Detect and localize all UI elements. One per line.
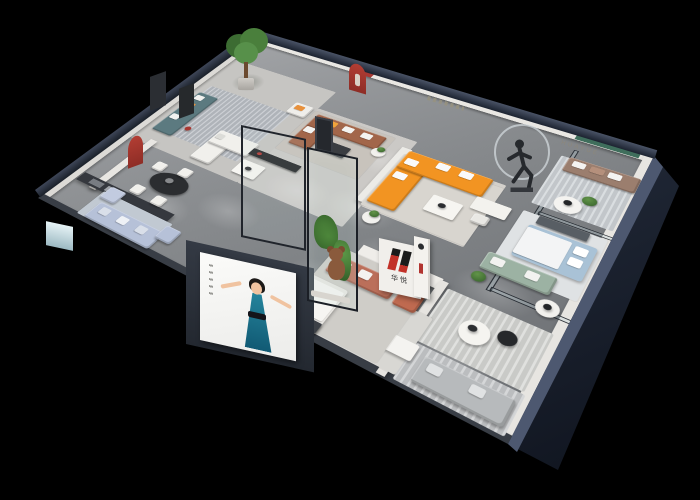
display-pillar (414, 236, 430, 300)
teddy-bear-mascot (325, 246, 347, 282)
dark-doorway (179, 83, 194, 118)
tree-canopy (234, 42, 258, 64)
exterior-bench-box (46, 221, 73, 251)
runner-statue (506, 138, 536, 192)
tree-pot (238, 78, 254, 90)
wall-artwork (315, 116, 333, 154)
poster-vertical-text-marks (209, 264, 213, 299)
niche-figurine (355, 73, 360, 87)
dark-wardrobe-panel (150, 71, 166, 111)
tree-trunk (244, 62, 248, 78)
brand-logo-mark (389, 247, 411, 274)
logo-bar-right (398, 250, 411, 273)
indoor-tree (224, 28, 270, 94)
pillar-red-decor (419, 263, 423, 274)
glass-partition-pane (241, 125, 306, 251)
poster-woman-left-arm (220, 281, 242, 288)
display-gravel (311, 290, 350, 304)
poster-woman-dress (238, 289, 276, 353)
clock-icon (418, 243, 424, 250)
dining-chair (151, 161, 170, 172)
scene: 华悦 HUAYUE (0, 0, 700, 500)
poster-woman-right-arm (270, 294, 292, 309)
teddy-body (328, 259, 345, 280)
glass-display-case (307, 147, 358, 312)
